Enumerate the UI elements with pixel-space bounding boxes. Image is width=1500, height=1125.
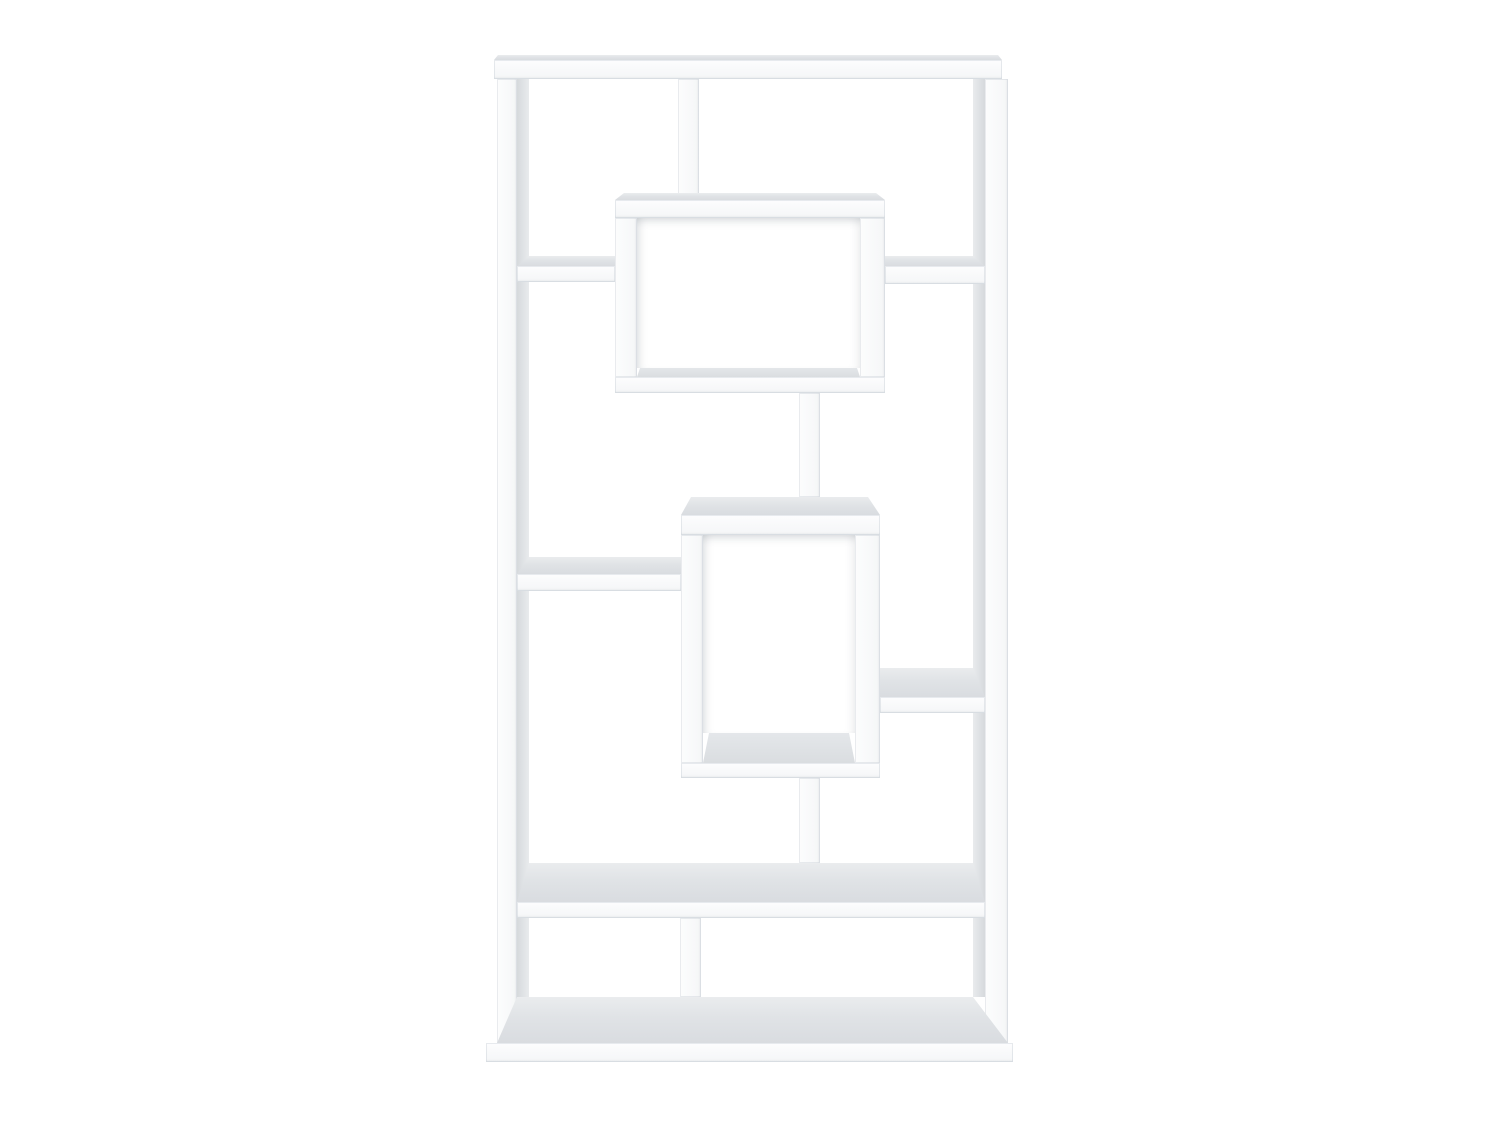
upper-left-shelf-top-face [517, 256, 615, 266]
middle-right-shelf-top-face [880, 668, 985, 697]
upper-box-cavity [637, 218, 860, 368]
upper-box-bottom [615, 377, 885, 393]
middle-box-top [681, 515, 880, 535]
product-photo-stage [0, 0, 1500, 1125]
lower-connector-post [799, 778, 820, 863]
bookcase [0, 0, 1500, 1125]
upper-box-left-side [615, 218, 637, 377]
middle-box-left-side [681, 535, 703, 763]
upper-box-top [615, 200, 885, 218]
left-side-panel [497, 79, 517, 1043]
middle-left-shelf [517, 574, 681, 591]
middle-box-top-face [681, 497, 880, 515]
upper-left-shelf [517, 266, 615, 282]
base-top-face [497, 997, 1008, 1043]
middle-left-shelf-top-face [517, 557, 681, 574]
middle-box-cavity [703, 535, 855, 733]
lower-shelf-top-face [517, 863, 985, 902]
lower-shelf [517, 902, 985, 918]
lower-divider [680, 918, 701, 997]
upper-box-top-face [615, 193, 885, 200]
base-board [486, 1043, 1013, 1062]
upper-box-floor [637, 368, 860, 377]
upper-right-shelf [885, 266, 985, 284]
upper-connector-post [799, 393, 820, 497]
middle-box-right-side [855, 535, 880, 763]
right-panel-inner-face [973, 79, 985, 997]
middle-right-shelf [880, 697, 985, 713]
middle-box-bottom [681, 763, 880, 778]
middle-box-floor [703, 733, 855, 763]
left-panel-inner-face [517, 79, 529, 997]
upper-right-shelf-top-face [885, 256, 985, 266]
upper-divider [678, 79, 699, 200]
top-board [494, 60, 1002, 79]
right-side-panel [985, 79, 1008, 1043]
upper-box-right-side [860, 218, 885, 377]
